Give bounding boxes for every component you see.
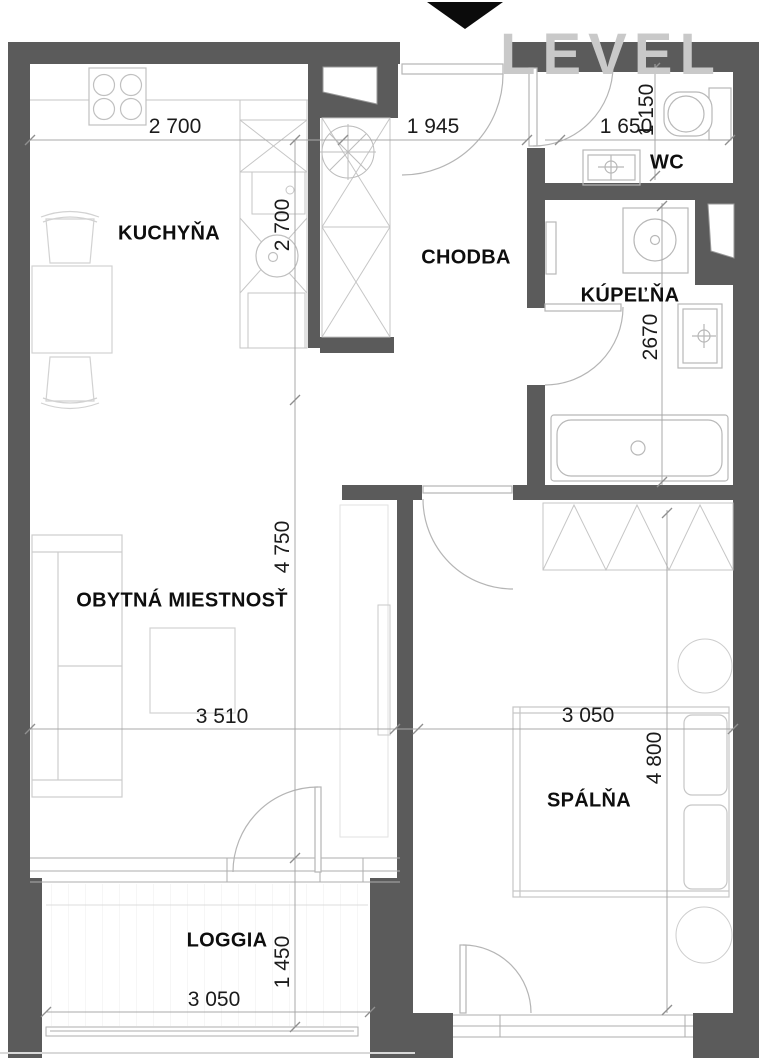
living-balcony-door bbox=[233, 787, 321, 872]
loggia-railing bbox=[0, 1027, 415, 1053]
room-label-loggia: LOGGIA bbox=[187, 930, 268, 953]
room-label-living: OBYTNÁ MIESTNOSŤ bbox=[76, 590, 287, 613]
room-label-hallway: CHODBA bbox=[421, 247, 511, 270]
living-rug bbox=[340, 505, 388, 837]
dining-table bbox=[32, 266, 112, 353]
toilet-icon bbox=[664, 88, 731, 140]
room-label-bathroom: KÚPEĽŇA bbox=[581, 285, 680, 308]
dim-living-width: 3 510 bbox=[196, 705, 249, 729]
chair-bottom bbox=[41, 357, 99, 409]
chair-top bbox=[41, 212, 99, 264]
room-label-wc: WC bbox=[650, 152, 684, 175]
dim-bedroom-width: 3 050 bbox=[562, 704, 615, 728]
dim-bedroom-depth: 4 800 bbox=[643, 732, 667, 785]
washing-machine-icon bbox=[623, 208, 688, 273]
dim-loggia-width: 3 050 bbox=[188, 988, 241, 1012]
dim-bathroom-depth: 2670 bbox=[639, 314, 663, 361]
dim-kitchen-depth: 2 700 bbox=[271, 199, 295, 252]
dim-kitchen-width: 2 700 bbox=[149, 115, 202, 139]
bathroom-door bbox=[545, 304, 623, 385]
dim-loggia-depth: 1 450 bbox=[271, 936, 295, 989]
bathroom-sink-icon bbox=[678, 304, 722, 368]
dim-hallway-width: 1 945 bbox=[407, 115, 460, 139]
plan-drawing bbox=[0, 0, 759, 1058]
pillow-top bbox=[684, 715, 727, 795]
bedroom-window bbox=[453, 1015, 693, 1037]
floorplan: LEVEL bbox=[0, 0, 759, 1058]
hall-closet bbox=[322, 118, 390, 337]
sofa bbox=[32, 535, 122, 797]
wc-sink-icon bbox=[583, 150, 640, 185]
living-room-window bbox=[30, 858, 400, 882]
dim-living-depth: 4 750 bbox=[271, 521, 295, 574]
pillow-bottom bbox=[684, 805, 727, 889]
bedroom-door bbox=[423, 486, 513, 589]
coffee-table bbox=[150, 628, 235, 713]
bedroom-wardrobe bbox=[543, 503, 733, 570]
level-watermark: LEVEL bbox=[500, 26, 722, 84]
vent-fan-icon bbox=[320, 124, 376, 180]
room-label-kitchen: KUCHYŇA bbox=[118, 223, 220, 246]
dim-wc-depth: 1 150 bbox=[635, 84, 659, 137]
room-label-bedroom: SPÁLŇA bbox=[547, 790, 631, 813]
bathtub-icon bbox=[551, 415, 728, 481]
bedroom-balcony-door bbox=[460, 945, 531, 1013]
shaft-right bbox=[708, 204, 734, 258]
radiator-icon bbox=[546, 222, 556, 274]
stove-icon bbox=[89, 68, 146, 125]
entrance-arrow-icon bbox=[427, 2, 503, 29]
shaft-top bbox=[323, 67, 377, 104]
pouf-lower bbox=[676, 907, 732, 963]
pouf-upper bbox=[678, 639, 732, 693]
